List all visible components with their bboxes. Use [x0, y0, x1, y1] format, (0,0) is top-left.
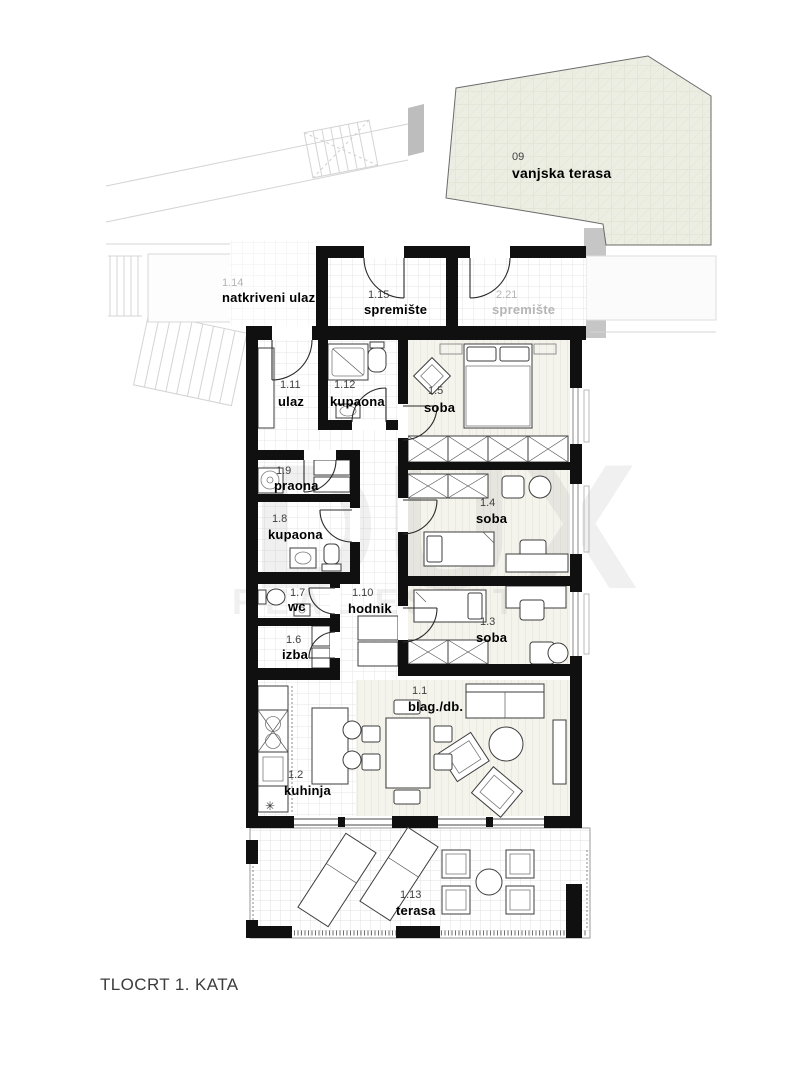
- room-name: vanjska terasa: [512, 165, 611, 181]
- room-number: 1.14: [222, 277, 243, 289]
- room-number: 1.4: [480, 497, 495, 509]
- stairs-left: [134, 312, 247, 405]
- room-name: hodnik: [348, 601, 392, 616]
- room-number: 1.7: [290, 587, 305, 599]
- room-name: soba: [424, 400, 456, 415]
- room-number: 1.6: [286, 634, 301, 646]
- room-name: kupaona: [268, 527, 323, 542]
- room-name: izba: [282, 647, 309, 662]
- room-number: 1.12: [334, 379, 355, 391]
- room-name: soba: [476, 630, 508, 645]
- room-label-wc: 1.7 wc: [287, 587, 306, 614]
- room-name: ulaz: [278, 394, 304, 409]
- room-name: wc: [287, 599, 306, 614]
- floorplan-page: DUX REAL ESTATE: [0, 0, 796, 1080]
- room-number: 1.3: [480, 616, 495, 628]
- room-number: 1.15: [368, 289, 389, 301]
- room-name: soba: [476, 511, 508, 526]
- room-name: spremište: [364, 302, 427, 317]
- stairs-upper: [304, 120, 378, 178]
- room-label-ulaz: 1.11 ulaz: [278, 379, 304, 409]
- floor-plan-canvas: DUX REAL ESTATE: [0, 0, 796, 1080]
- room-number: 1.5: [428, 385, 443, 397]
- room-name: kuhinja: [284, 783, 331, 798]
- freezer-symbol: ✳: [265, 799, 275, 813]
- bathroom-1-8-fixtures: [290, 544, 341, 571]
- kitchen-island: [312, 708, 348, 784]
- room-number: 1.1: [412, 685, 427, 697]
- room-number: 1.11: [280, 379, 301, 391]
- page-title: TLOCRT 1. KATA: [100, 975, 239, 994]
- room-name: blag./db.: [408, 699, 463, 714]
- room-number: 1.13: [400, 889, 421, 901]
- room-number: 1.10: [352, 587, 373, 599]
- outdoor-terrace-area: [446, 56, 711, 245]
- room-name: spremište: [492, 302, 555, 317]
- room-name: terasa: [396, 903, 436, 918]
- fence-left: [108, 256, 142, 316]
- room-name: praona: [274, 478, 319, 493]
- room-number: 1.2: [288, 769, 303, 781]
- room-number: 09: [512, 151, 524, 163]
- room-number: 2.21: [496, 289, 517, 301]
- room-name: kupaona: [330, 394, 385, 409]
- wardrobe-row-1-5: [408, 436, 568, 462]
- room-number: 1.9: [276, 465, 291, 477]
- room-name: natkriveni ulaz: [222, 290, 316, 305]
- room-number: 1.8: [272, 513, 287, 525]
